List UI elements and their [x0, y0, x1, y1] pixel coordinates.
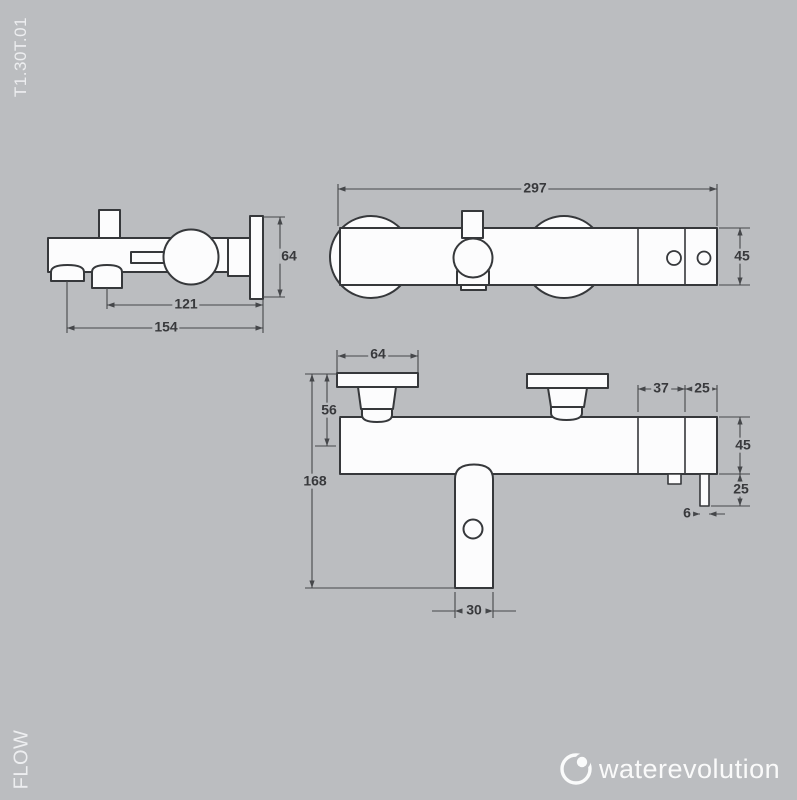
dim-front-knob-to-axis: 56	[319, 403, 339, 418]
dim-front-overall-height: 168	[301, 474, 328, 489]
dim-front-pipe-width: 6	[681, 506, 693, 521]
front-diverter-stem	[358, 387, 396, 409]
top-handle-knob	[454, 239, 493, 278]
waterdrop-logo-icon	[558, 751, 594, 787]
technical-drawing	[0, 0, 797, 800]
dim-front-section-b: 25	[692, 381, 712, 396]
brand-logo: waterevolution	[558, 751, 780, 787]
side-shower-outlet	[92, 265, 122, 288]
side-spout-outlet	[51, 265, 84, 281]
dim-side-spout-to-wall: 154	[152, 320, 179, 335]
front-handle-plate	[527, 374, 608, 388]
front-handle-base	[551, 407, 582, 420]
front-outlet-pipe	[700, 474, 709, 506]
side-view-drawing	[48, 210, 263, 299]
dim-front-section-a: 37	[651, 381, 671, 396]
front-view-drawing	[337, 373, 717, 588]
side-handle-knob	[164, 230, 219, 285]
top-screw-hole-right	[698, 252, 711, 265]
top-handle-lever	[462, 211, 483, 238]
top-screw-hole-left	[667, 251, 681, 265]
drawing-sheet: T1.30T.01 FLOW	[0, 0, 797, 800]
dim-top-body-depth: 45	[732, 249, 752, 264]
side-valve-block	[228, 238, 250, 276]
side-diverter-knob	[99, 210, 120, 238]
top-handle-base-front	[461, 285, 486, 290]
dim-top-overall-width: 297	[521, 181, 548, 196]
front-handle-stem	[548, 388, 587, 407]
dim-front-spout-width: 30	[464, 603, 484, 618]
dim-front-outlet-drop: 25	[731, 482, 751, 497]
top-body-bar	[340, 228, 717, 285]
dim-front-knob-width: 64	[368, 347, 388, 362]
dim-side-shower-to-wall: 121	[172, 297, 199, 312]
front-body-bar	[340, 417, 717, 474]
front-spout-button	[464, 520, 483, 539]
front-check-valve-tab	[668, 474, 681, 484]
dim-front-body-height: 45	[733, 438, 753, 453]
top-view-drawing	[330, 211, 717, 298]
front-diverter-plate	[337, 373, 418, 387]
side-wall-plate	[250, 216, 263, 299]
dim-side-plate-height: 64	[279, 249, 299, 264]
brand-logo-text: waterevolution	[599, 754, 780, 785]
front-diverter-base	[362, 409, 392, 422]
